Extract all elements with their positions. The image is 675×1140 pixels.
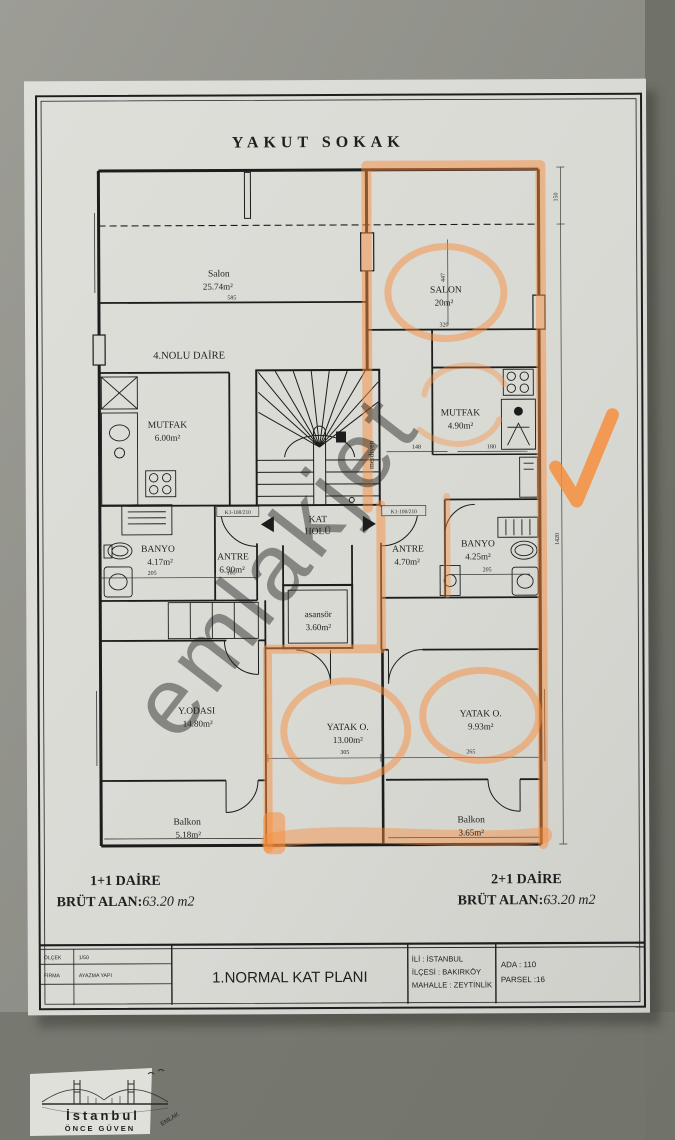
left-area-value: 63.20 m2	[142, 895, 194, 910]
kat-holu-line1: KAT	[309, 515, 328, 525]
yodasi-area: 14.80m²	[183, 719, 213, 729]
salon-right-name: SALON	[430, 285, 462, 295]
firma-label: FİRMA	[44, 972, 61, 979]
right-area-value: 63.20 m2	[543, 893, 595, 908]
left-area-label: BRÜT ALAN:	[57, 893, 143, 910]
floorplan-photo: YAKUT SOKAK	[0, 0, 675, 1140]
salon-left-area: 25.74m²	[203, 281, 233, 291]
banyo-left-name: BANYO	[141, 545, 175, 555]
yatak1-name: YATAK O.	[327, 723, 369, 733]
dim-305: 305	[340, 750, 349, 756]
yodasi-name: Y.ODASI	[178, 707, 215, 717]
asansor-area: 3.60m²	[306, 622, 332, 632]
mutfak-right-area: 4.90m²	[448, 420, 474, 430]
salon-left-name: Salon	[208, 269, 230, 279]
floorplan-svg: YAKUT SOKAK	[0, 0, 675, 1140]
neighborhood-field: MAHALLE : ZEYTİNLİK	[412, 980, 492, 989]
asansor-name: asansör	[305, 609, 332, 619]
logo-tagline: ÖNCE GÜVEN	[65, 1124, 135, 1133]
banyo-right-area: 4.25m²	[465, 551, 491, 561]
mutfak-left-area: 6.00m²	[155, 433, 181, 443]
dim-148: 148	[412, 445, 421, 451]
dim-265: 265	[466, 749, 475, 755]
mutfak-right-name: MUTFAK	[441, 408, 481, 418]
parsel-field: PARSEL :16	[501, 975, 546, 984]
right-unit-area: BRÜT ALAN:63.20 m2	[458, 891, 596, 909]
antre-left-name: ANTRE	[217, 552, 249, 562]
firma-value: AYAZMA YAPI	[79, 973, 112, 979]
yatak1-area: 13.00m²	[333, 735, 363, 745]
balkon-left-area: 5.18m²	[175, 830, 201, 840]
ada-field: ADA : 110	[501, 960, 537, 969]
yatak2-name: YATAK O.	[460, 709, 502, 719]
right-unit-title: 2+1 DAİRE	[491, 870, 562, 887]
balkon-left-name: Balkon	[173, 818, 201, 828]
antre-right-area: 4.70m²	[394, 557, 420, 567]
door-tag-left: K1-100/210	[225, 510, 251, 516]
street-title: YAKUT SOKAK	[232, 134, 405, 152]
dim-180: 180	[487, 444, 496, 450]
dim-205-left: 205	[148, 571, 157, 577]
logo-city: İstanbul	[66, 1108, 140, 1123]
antre-right-name: ANTRE	[392, 545, 424, 555]
dim-205-right: 205	[483, 567, 492, 573]
dim-320: 320	[440, 323, 449, 329]
balkon-right-area: 3.65m²	[458, 827, 484, 837]
paper-sheet: YAKUT SOKAK	[24, 79, 660, 1028]
right-area-label: BRÜT ALAN:	[458, 891, 544, 908]
mutfak-left-name: MUTFAK	[148, 421, 188, 431]
plan-title: 1.NORMAL KAT PLANI	[212, 969, 368, 987]
olcek-value: 1/50	[79, 955, 89, 961]
door-tag-right: K1-100/210	[391, 509, 417, 515]
left-unit-area: BRÜT ALAN:63.20 m2	[57, 893, 195, 911]
unit4-label: 4.NOLU DAİRE	[153, 349, 225, 361]
dim-150: 150	[553, 193, 559, 202]
dim-585: 585	[227, 295, 236, 301]
dim-1420: 1420	[555, 533, 561, 545]
province-field: İLİ : İSTANBUL	[412, 954, 463, 963]
dim-447: 447	[441, 273, 447, 282]
district-field: İLÇESİ : BAKIRKÖY	[412, 967, 481, 976]
olcek-label: ÖLÇEK	[44, 954, 62, 961]
yatak2-area: 9.93m²	[468, 721, 494, 731]
salon-right-area: 20m²	[435, 297, 454, 307]
kat-holu-line2: HOLÜ	[305, 525, 332, 537]
banyo-left-area: 4.17m²	[147, 557, 173, 567]
dim-185: 185	[227, 570, 236, 576]
banyo-right-name: BANYO	[461, 539, 495, 549]
balkon-right-name: Balkon	[457, 815, 485, 825]
left-unit-title: 1+1 DAİRE	[90, 872, 161, 889]
merdiven-label: merdiven	[367, 440, 376, 469]
